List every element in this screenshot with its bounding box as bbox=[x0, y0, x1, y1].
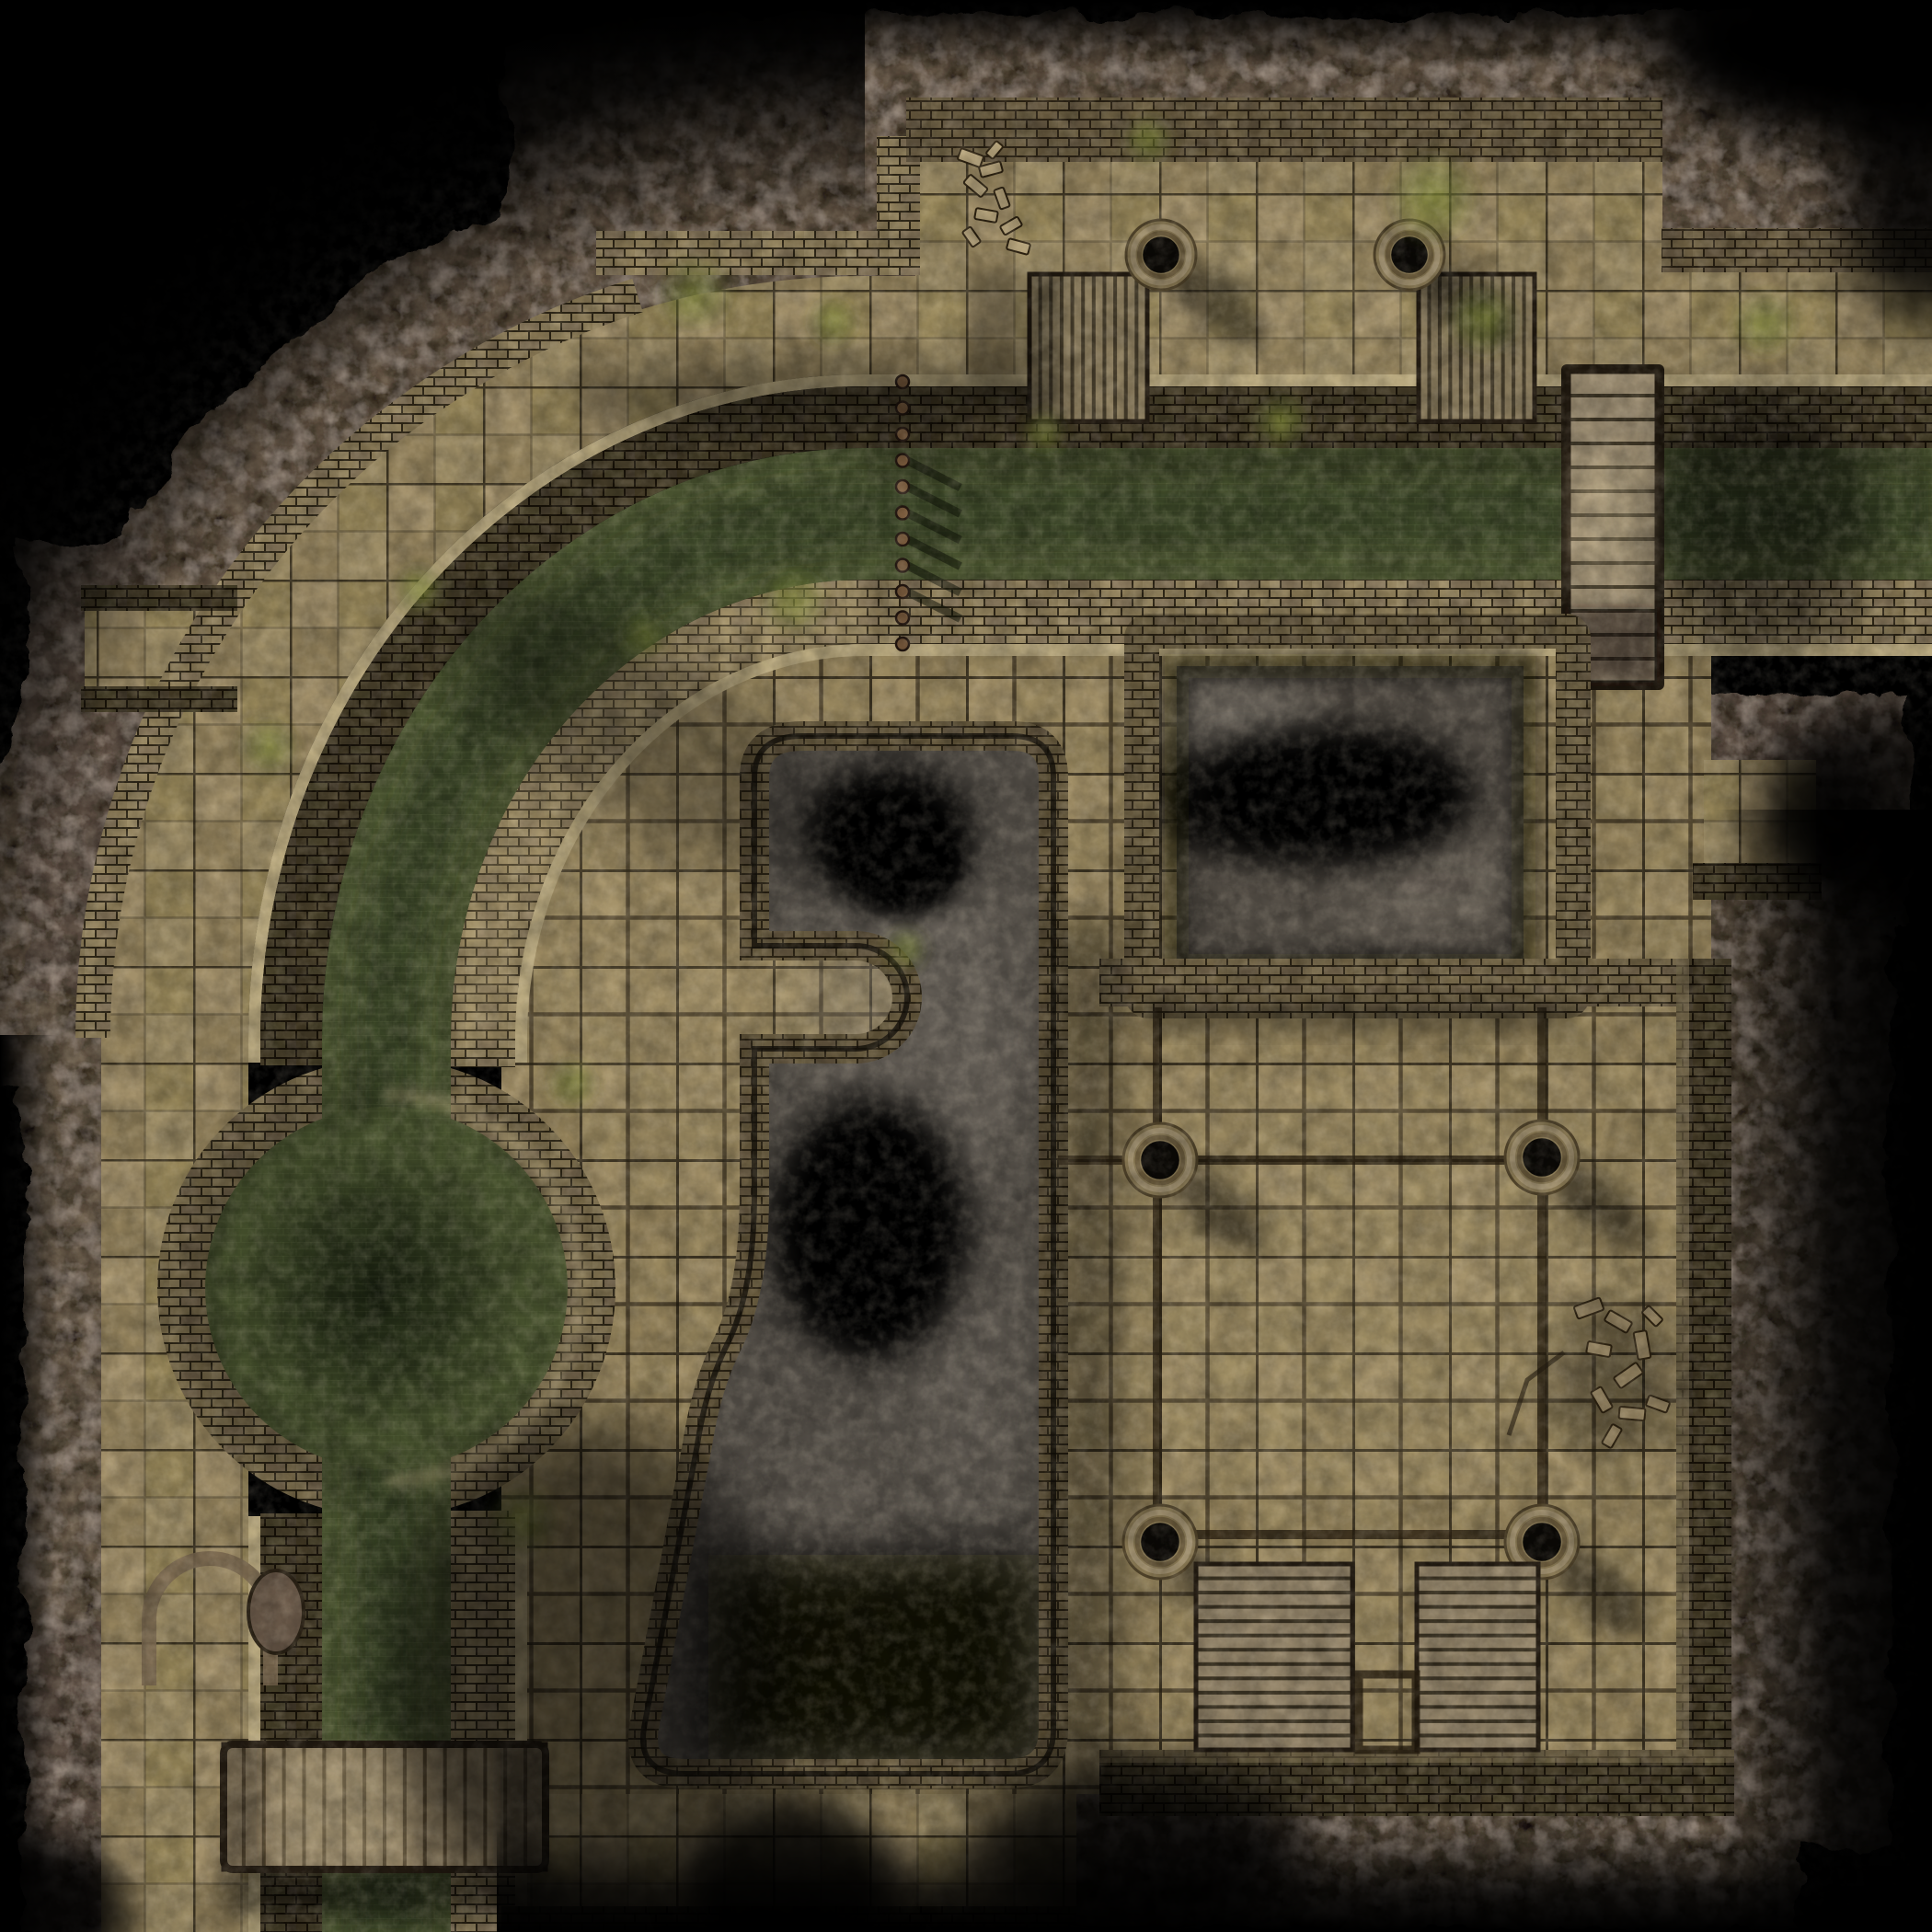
dungeon-map-stage bbox=[0, 0, 1932, 1932]
vignette-stub-blob bbox=[1782, 756, 1883, 878]
vignette-top-left bbox=[0, 0, 865, 1040]
shadow-stairs1-west bbox=[971, 271, 1028, 396]
vignette-left bbox=[0, 1035, 57, 1932]
dungeon-map bbox=[0, 0, 1932, 1932]
vignette-bottom-blob1 bbox=[961, 1764, 1311, 1932]
vignette-right bbox=[1713, 810, 1932, 1932]
map-scene bbox=[0, 0, 1932, 1932]
shadow-under-pit-north bbox=[1142, 1001, 1573, 1032]
